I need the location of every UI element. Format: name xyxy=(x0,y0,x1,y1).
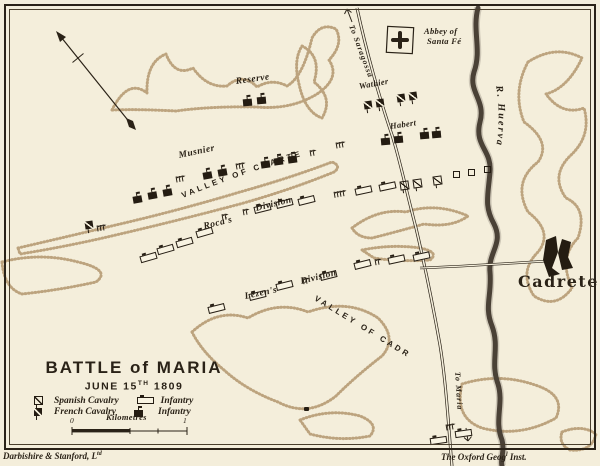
battle-map-page: VALLEY OF CUARTE VALLEY OF CADRETE R. Hu… xyxy=(0,0,600,466)
cartographer-credit: Darbishire & Stanford, Ltd xyxy=(3,451,102,461)
map-outer-border xyxy=(4,4,596,450)
institute-credit: The Oxford Geogl Inst. xyxy=(441,452,527,462)
